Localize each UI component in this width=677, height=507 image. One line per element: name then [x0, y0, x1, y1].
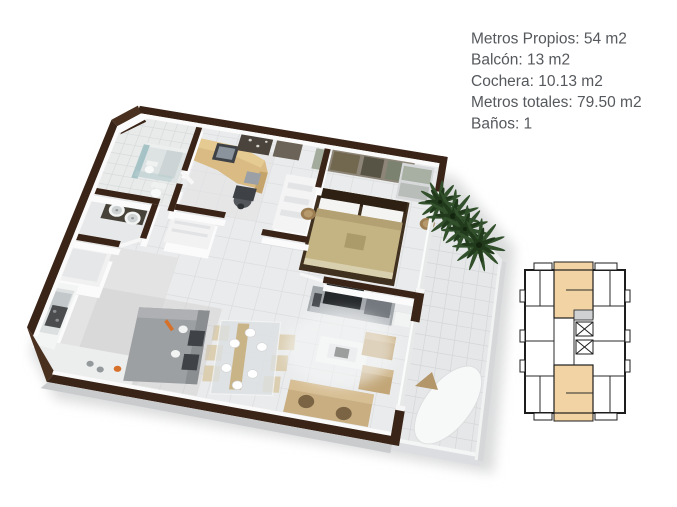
svg-text:Cochera: 10.13 m2: Cochera: 10.13 m2 [471, 73, 603, 90]
svg-text:Metros totales: 79.50 m2: Metros totales: 79.50 m2 [471, 94, 642, 111]
svg-text:Balcón: 13 m2: Balcón: 13 m2 [471, 52, 570, 69]
svg-text:Metros Propios: 54 m2: Metros Propios: 54 m2 [471, 31, 627, 48]
svg-text:Baños: 1: Baños: 1 [471, 115, 532, 132]
